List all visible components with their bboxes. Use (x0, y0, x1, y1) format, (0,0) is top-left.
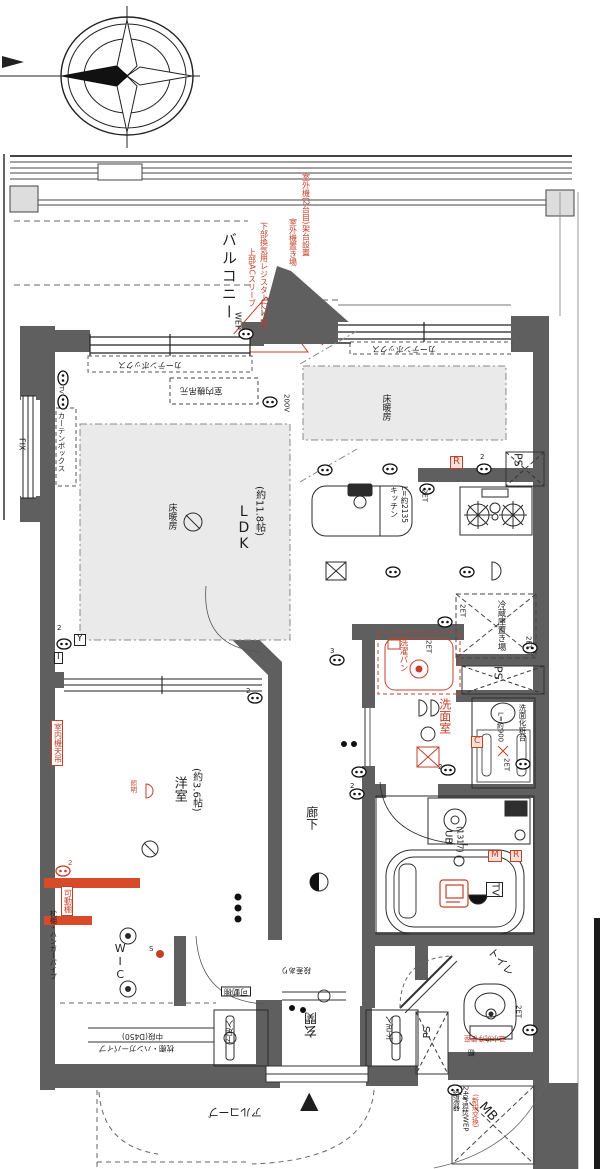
indoor-unit-west-note: 室内機天吊 (51, 720, 63, 766)
unit-bath-size: (1317) (455, 826, 463, 853)
step-note: 段差あり (281, 966, 311, 974)
ps-label-2: PS (492, 666, 504, 680)
count-2f: 2 (438, 764, 442, 771)
y-outlet-box: Y (74, 634, 86, 646)
curtain-box-top: カーテンボックス (118, 360, 182, 368)
r-outlet-box-1: R (450, 456, 463, 469)
toilet-label: トイレ (485, 946, 516, 978)
et-label-2: 2ET (458, 604, 465, 617)
vent-register-note: 下部換気用レジスター(2ヶ所) (259, 222, 267, 329)
western-room-size: (約3.6帖) (190, 768, 201, 812)
balcony-label: バルコニー (220, 232, 236, 322)
toilet-note: 温水洗浄便座 (464, 1034, 506, 1041)
middle-shelf-label-1: 枕棚・ハンガーパイプ (99, 1044, 174, 1052)
outdoor-unit-note: 室外機置き場 (288, 218, 296, 266)
fix-window-label: FIX (17, 438, 25, 450)
count-2a: 2 (68, 860, 72, 867)
wep-balcony-label: WEP (233, 312, 241, 330)
switch-s-label: S (149, 946, 153, 953)
movable-shelf-note-1: 可動棚 (61, 886, 73, 916)
count-2c: 2 (246, 688, 250, 695)
meter-box-label: MB (476, 1100, 500, 1124)
et-label-6: 2ET (514, 1005, 521, 1018)
entrance-label: 玄関 (306, 1012, 320, 1038)
curtain-box-left: カーテンボックス (57, 412, 65, 472)
kitchen-name: キッチン (389, 486, 397, 518)
unit-bath-label: UB (442, 830, 453, 844)
indoor-unit-ldk-note: 室内機吊元 (180, 385, 223, 394)
water-heater-label-1: 給湯器 (452, 1090, 459, 1111)
c-outlet-box: C (471, 736, 483, 748)
et-label-1: 2ET (420, 489, 427, 502)
water-heater-label-2: 24号追焚WEP (461, 1086, 468, 1131)
shelf-label: 棚 (468, 1048, 475, 1055)
m-outlet-box: M (488, 850, 502, 862)
vanity-size: L=約900 (496, 712, 503, 742)
floor-heating-kitchen-label: 床暖房 (380, 394, 390, 421)
r-outlet-box-2: R (510, 850, 522, 862)
vanity-label: 洗面化粧台 (518, 704, 526, 742)
entrance-direction-mark: ▲ (300, 1088, 318, 1113)
shoe-box-left-label: 下足入 (226, 1020, 234, 1044)
washroom-label: 洗面室 (438, 698, 451, 734)
et-label-3: 2ET (524, 636, 531, 649)
bath-tv-label: TV (486, 882, 503, 897)
floor-plan: バルコニーWEP上部ACスリーブ下部換気用レジスター(2ヶ所)室外機置き場室外機… (0, 0, 600, 1169)
count-2b: 2 (57, 625, 61, 632)
hallway-label: 廊下 (305, 806, 318, 830)
count-2e: 2 (350, 783, 354, 790)
tv-outlet-label: TV (57, 386, 63, 394)
western-room-label: 洋室 (172, 776, 186, 802)
shoe-box-right-label: 下足入 (386, 1016, 394, 1040)
count-3a: 3 (330, 648, 334, 655)
alcove-label: アルコーブ (208, 1106, 262, 1118)
outdoor-unit2-note: 室外機(2台目)架台設置 (301, 173, 309, 256)
kitchen-size: L=約2135 (400, 486, 408, 523)
middle-shelf-label-2: 中段(D450) (122, 1032, 163, 1040)
ldk-name: LDK (236, 504, 251, 552)
shelf-hanger-pipe-label: 枕棚・ハンガーパイプ (49, 910, 56, 980)
outlet-200v-label: 200V (282, 394, 289, 412)
label-layer: バルコニーWEP上部ACスリーブ下部換気用レジスター(2ヶ所)室外機置き場室外機… (0, 0, 600, 1169)
wic-label: WIC (114, 942, 126, 981)
ac-sleeve-note: 上部ACスリーブ (247, 248, 255, 307)
fridge-space-label: 冷蔵庫置き場 (496, 600, 505, 651)
ps-label-3: PS (423, 1026, 434, 1038)
movable-shelf-note-2: 可動棚 (221, 986, 251, 996)
curtain-box-kitchen: カーテンボックス (372, 344, 436, 352)
water-heater-label-3: (新規交換) (471, 1094, 478, 1127)
floor-heating-ldk-label: 床暖房 (166, 503, 176, 530)
et-label-5: 2ET (502, 758, 509, 771)
washer-pan-label: 洗濯パン (398, 638, 407, 672)
light-note: 照明 (129, 780, 136, 793)
et-label-4: 2ET (424, 640, 431, 653)
i-outlet-box: I (54, 652, 63, 664)
count-2d: 2 (480, 454, 484, 461)
ps-label-1: PS (512, 453, 524, 467)
ldk-size: (約11.8帖) (253, 486, 264, 536)
